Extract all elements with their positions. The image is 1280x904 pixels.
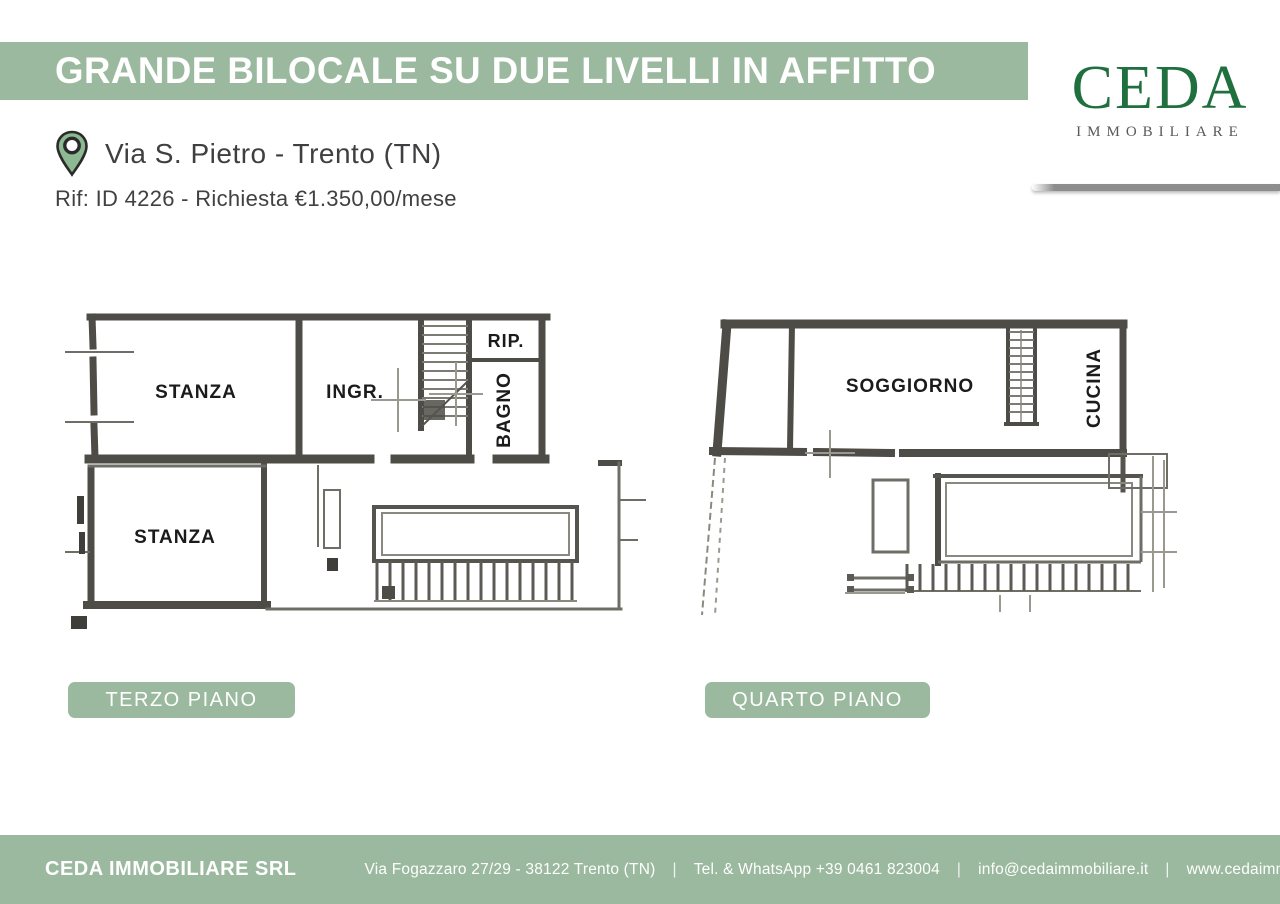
footer-phone: Tel. & WhatsApp +39 0461 823004 — [694, 861, 940, 879]
footer-email: info@cedaimmobiliare.it — [978, 861, 1148, 879]
footer-contact-info: Via Fogazzaro 27/29 - 38122 Trento (TN) … — [364, 861, 1280, 879]
footer-separator: | — [672, 861, 676, 879]
floor-badge-terzo-piano: TERZO PIANO — [68, 682, 295, 718]
room-label-ingresso: INGR. — [326, 382, 384, 403]
location-text: Via S. Pietro - Trento (TN) — [105, 138, 442, 170]
footer-separator: | — [957, 861, 961, 879]
footer-address: Via Fogazzaro 27/29 - 38122 Trento (TN) — [364, 861, 655, 879]
header-bar: GRANDE BILOCALE SU DUE LIVELLI IN AFFITT… — [0, 42, 1028, 100]
logo-divider — [1032, 184, 1280, 191]
room-label-soggiorno: SOGGIORNO — [846, 376, 974, 397]
map-pin-icon — [55, 130, 89, 178]
room-label-bagno: BAGNO — [494, 372, 515, 448]
footer-company-name: CEDA IMMOBILIARE SRL — [45, 858, 296, 881]
footer-website: www.cedaimmobiliare.it — [1187, 861, 1280, 879]
room-label-cucina: CUCINA — [1084, 348, 1105, 428]
location-row: Via S. Pietro - Trento (TN) — [55, 130, 442, 178]
room-label-stanza-1: STANZA — [155, 382, 237, 403]
logo-subtitle: IMMOBILIARE — [1050, 124, 1270, 141]
floorplan-terzo-piano: STANZA INGR. RIP. BAGNO STANZA — [65, 300, 650, 650]
reference-text: Rif: ID 4226 - Richiesta €1.350,00/mese — [55, 186, 457, 212]
room-label-stanza-2: STANZA — [134, 527, 216, 548]
room-label-ripostiglio: RIP. — [488, 331, 525, 351]
floorplan-quarto-piano: SOGGIORNO CUCINA — [695, 300, 1185, 650]
page-title: GRANDE BILOCALE SU DUE LIVELLI IN AFFITT… — [55, 50, 936, 92]
logo-wordmark: CEDA — [1050, 56, 1270, 120]
footer-bar: CEDA IMMOBILIARE SRL Via Fogazzaro 27/29… — [0, 835, 1280, 904]
agency-logo: CEDA IMMOBILIARE — [1050, 56, 1270, 141]
footer-separator: | — [1165, 861, 1169, 879]
floor-badge-quarto-piano: QUARTO PIANO — [705, 682, 930, 718]
